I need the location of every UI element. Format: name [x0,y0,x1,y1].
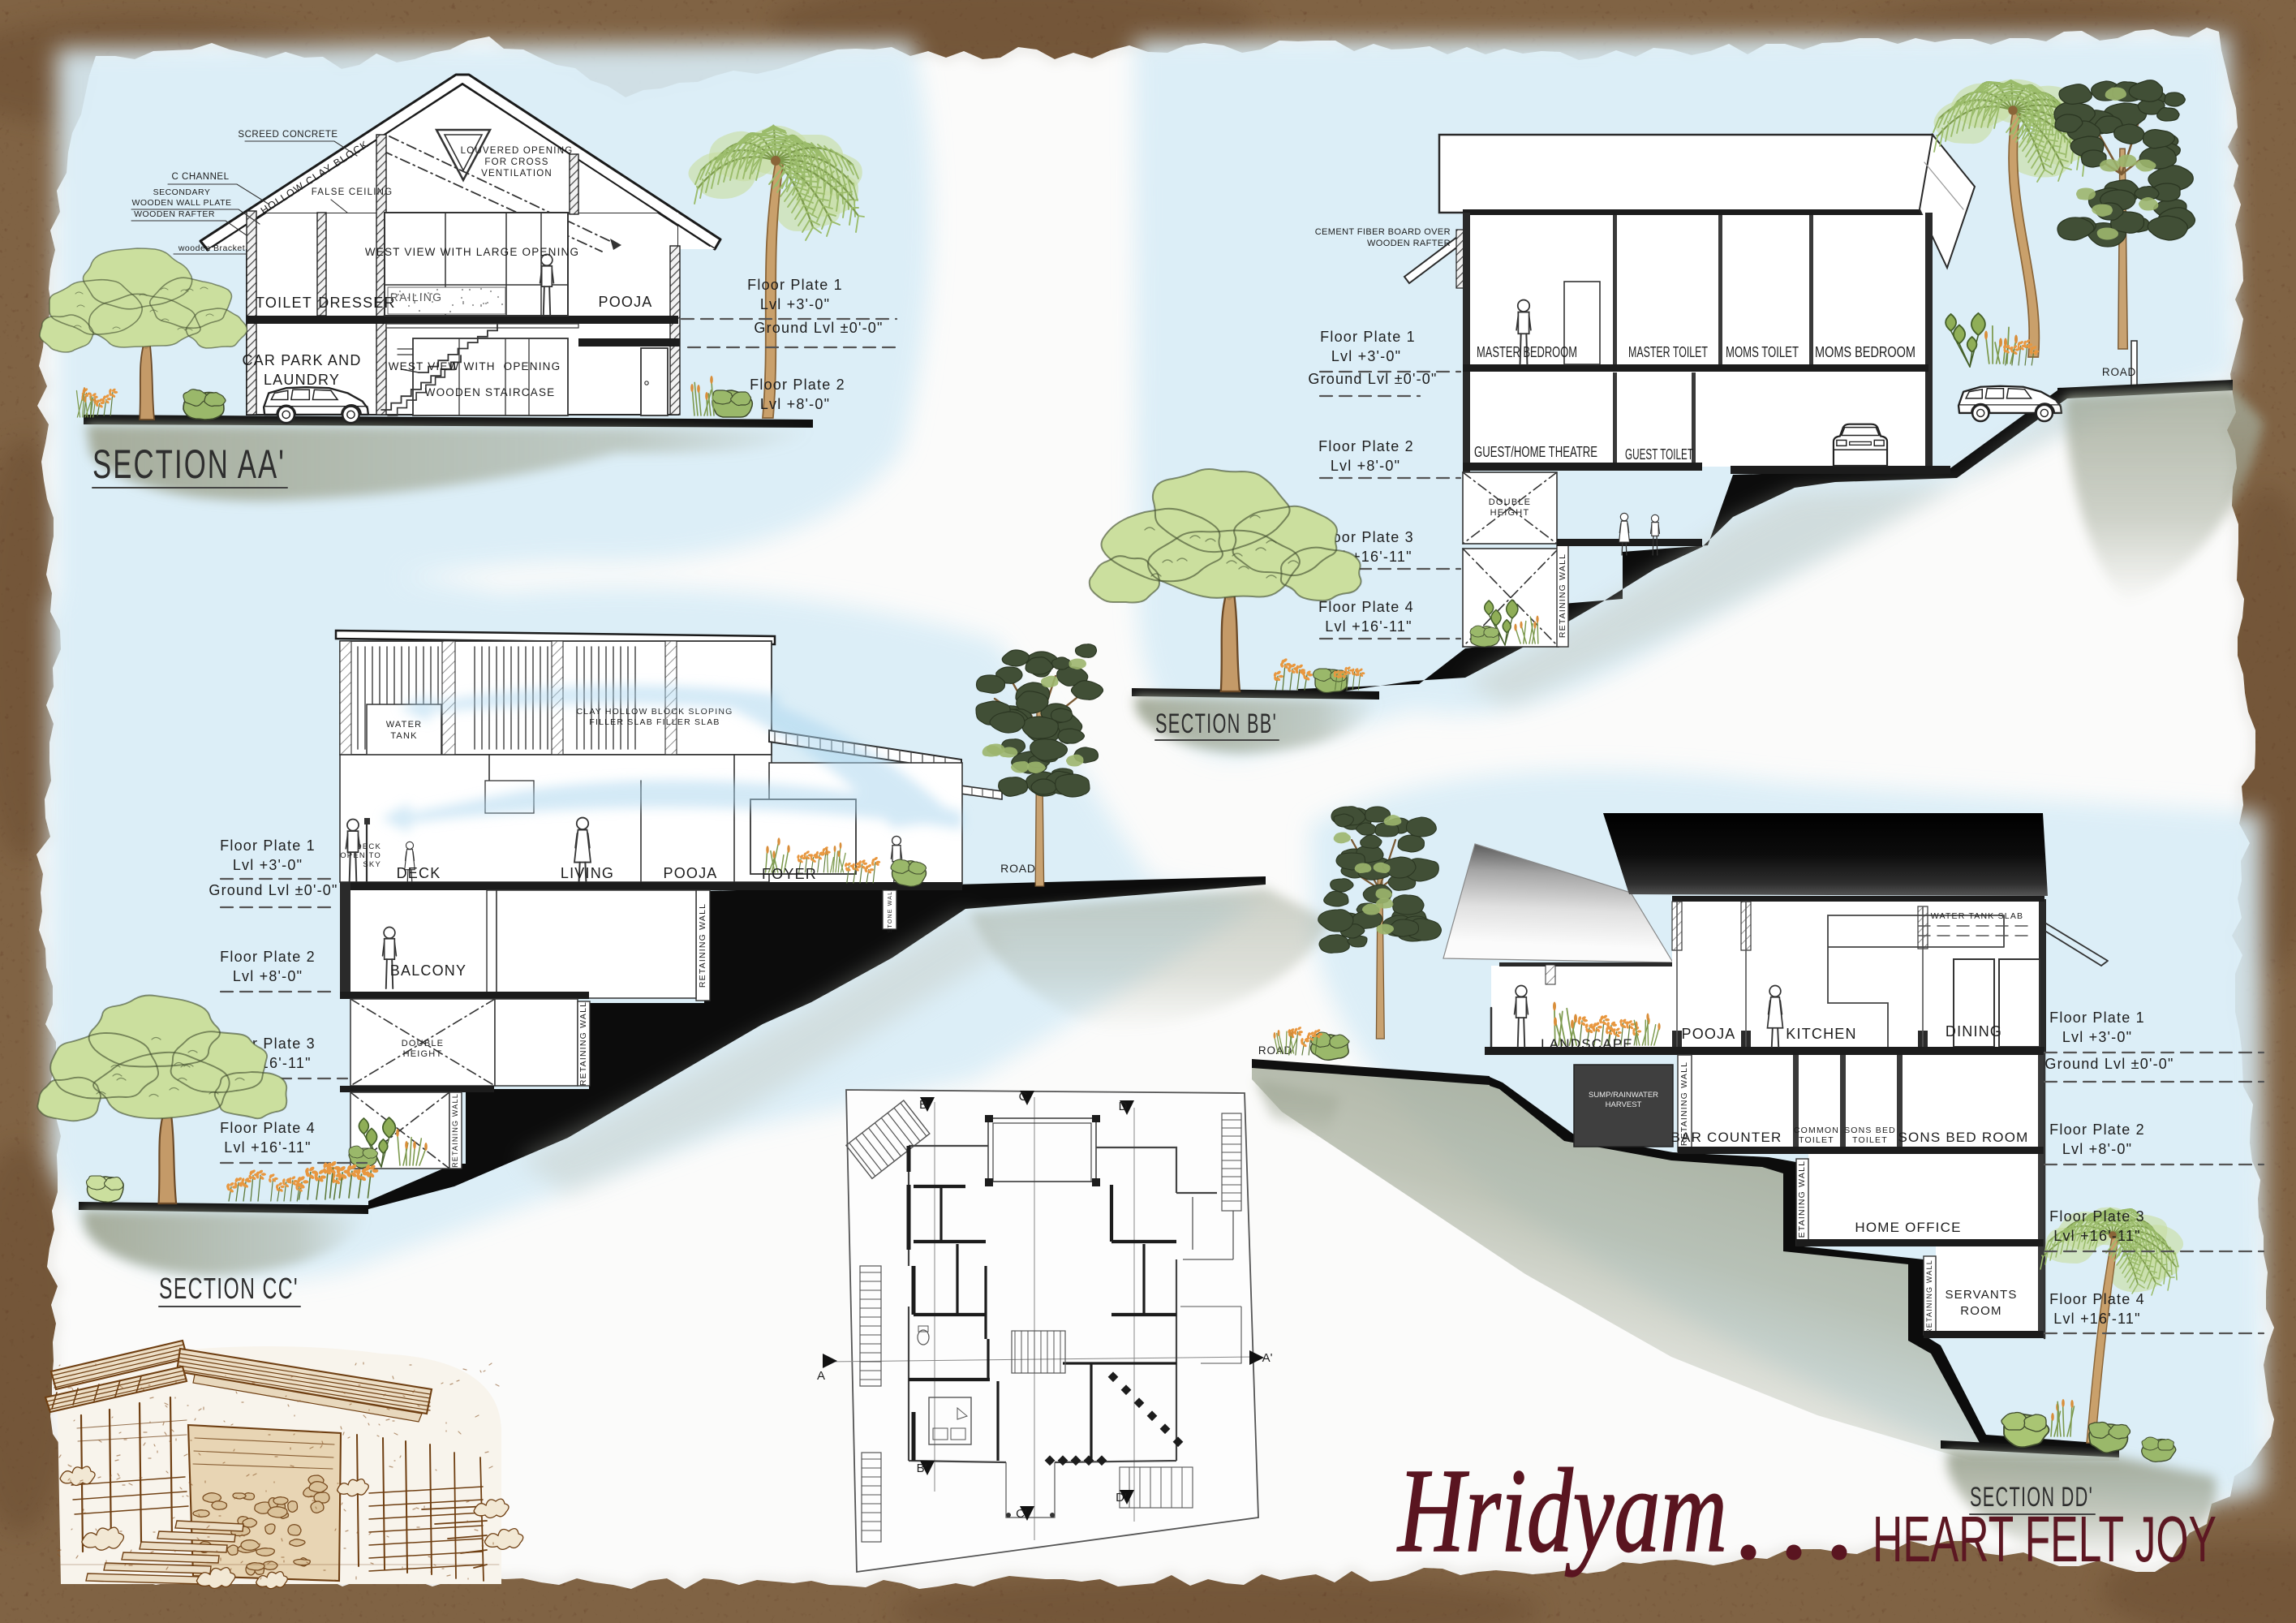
svg-text:Floor Plate 2: Floor Plate 2 [750,377,845,393]
svg-text:Lvl +8'-0": Lvl +8'-0" [2062,1141,2132,1157]
svg-text:RETAINING WALL: RETAINING WALL [451,1093,459,1168]
svg-text:BALCONY: BALCONY [390,962,467,979]
svg-text:A: A [817,1369,825,1383]
svg-text:Floor Plate 2: Floor Plate 2 [2049,1121,2145,1138]
svg-text:A': A' [1262,1351,1273,1365]
svg-text:DOUBLE: DOUBLE [1489,497,1531,507]
svg-text:POOJA: POOJA [1681,1026,1735,1042]
svg-text:SONS BED: SONS BED [1844,1126,1896,1135]
svg-text:Floor Plate 2: Floor Plate 2 [1318,438,1414,454]
svg-text:TOILET: TOILET [1852,1135,1888,1145]
svg-text:BAR COUNTER: BAR COUNTER [1671,1130,1782,1145]
svg-text:RETAINING WALL: RETAINING WALL [698,903,707,988]
svg-text:ROAD: ROAD [1000,862,1036,875]
svg-text:WOODEN RAFTER: WOODEN RAFTER [134,209,215,219]
svg-text:MOMS BEDROOM: MOMS BEDROOM [1815,344,1915,360]
svg-text:C CHANNEL: C CHANNEL [172,172,230,182]
svg-text:Floor Plate 1: Floor Plate 1 [747,277,843,293]
svg-text:VENTILATION: VENTILATION [481,169,553,179]
svg-text:Lvl +16'-11": Lvl +16'-11" [2053,1311,2140,1327]
svg-text:SERVANTS: SERVANTS [1945,1288,2017,1302]
svg-text:Ground Lvl ±0'-0": Ground Lvl ±0'-0" [2044,1056,2173,1072]
svg-text:LANDSCAPE: LANDSCAPE [1541,1036,1633,1052]
svg-text:RETAINING WALL: RETAINING WALL [1925,1259,1933,1334]
svg-text:Lvl +8'-0": Lvl +8'-0" [1331,458,1400,474]
svg-text:Lvl +16'-11": Lvl +16'-11" [224,1139,311,1156]
svg-text:ROAD: ROAD [2102,366,2136,378]
svg-text:CLAY HOLLOW BLOCK SLOPING: CLAY HOLLOW BLOCK SLOPING [577,707,733,717]
svg-text:HEIGHT: HEIGHT [1490,508,1530,518]
svg-text:FOR CROSS: FOR CROSS [484,157,548,167]
svg-text:Lvl +16'-11": Lvl +16'-11" [2053,1228,2140,1244]
svg-text:RETAINING WALL: RETAINING WALL [1558,553,1567,638]
svg-text:HEIGHT: HEIGHT [403,1049,443,1059]
svg-text:HARVEST: HARVEST [1606,1100,1642,1109]
svg-text:SONS BED ROOM: SONS BED ROOM [1898,1130,2028,1145]
svg-text:FOYER: FOYER [762,866,817,882]
svg-text:WATER: WATER [386,720,423,730]
svg-text:TANK: TANK [390,731,417,741]
svg-text:RAILING: RAILING [390,291,442,304]
svg-text:LAUNDRY: LAUNDRY [264,372,340,388]
svg-text:ROAD: ROAD [1258,1044,1292,1057]
svg-text:B: B [919,1098,927,1112]
svg-text:HEART FELT JOY: HEART FELT JOY [1872,1503,2216,1575]
svg-text:RETAINING WALL: RETAINING WALL [578,1001,588,1086]
svg-text:Floor Plate 4: Floor Plate 4 [1318,599,1414,615]
svg-text:LOUVERED OPENING: LOUVERED OPENING [461,146,574,156]
svg-text:Ground Lvl ±0'-0": Ground Lvl ±0'-0" [209,882,338,898]
svg-text:SECTION CC': SECTION CC' [159,1272,299,1305]
svg-text:C': C' [1016,1507,1027,1521]
svg-text:TOILET: TOILET [1799,1135,1834,1145]
svg-text:Floor Plate 3: Floor Plate 3 [2049,1208,2145,1225]
svg-text:CEMENT FIBER BOARD OVER: CEMENT FIBER BOARD OVER [1315,227,1451,237]
svg-text:WOODEN RAFTER: WOODEN RAFTER [1367,239,1451,248]
svg-text:Floor Plate 1: Floor Plate 1 [2049,1010,2145,1026]
svg-text:RETAINING WALL: RETAINING WALL [1797,1160,1807,1245]
svg-text:POOJA: POOJA [663,865,717,881]
svg-text:HOME OFFICE: HOME OFFICE [1855,1220,1961,1235]
svg-text:Lvl +8'-0": Lvl +8'-0" [760,396,830,412]
svg-text:DECK: DECK [397,865,441,881]
svg-text:LIVING: LIVING [561,865,614,881]
svg-text:ROOM: ROOM [1960,1304,2001,1318]
svg-text:SECONDARY: SECONDARY [153,187,211,197]
svg-text:DINING: DINING [1946,1023,2002,1040]
svg-text:WATER TANK SLAB: WATER TANK SLAB [1931,911,2023,921]
svg-text:B': B' [917,1462,927,1475]
svg-text:MASTER TOILET: MASTER TOILET [1628,344,1708,360]
svg-text:KITCHEN: KITCHEN [1786,1026,1856,1042]
svg-text:Lvl +8'-0": Lvl +8'-0" [233,968,303,984]
svg-text:MOMS TOILET: MOMS TOILET [1726,344,1799,360]
svg-text:Floor Plate 1: Floor Plate 1 [1320,329,1416,345]
svg-text:SECTION AA': SECTION AA' [92,441,286,487]
svg-text:WOODEN WALL PLATE: WOODEN WALL PLATE [131,198,231,208]
svg-text:DRESSER: DRESSER [318,295,395,311]
svg-text:GUEST/HOME THEATRE: GUEST/HOME THEATRE [1474,444,1597,460]
svg-text:CAR PARK AND: CAR PARK AND [242,352,361,368]
svg-text:TOILET: TOILET [256,295,312,311]
svg-text:Hridyam: Hridyam [1396,1444,1727,1578]
svg-text:POOJA: POOJA [598,294,652,310]
svg-text:FALSE CEILING: FALSE CEILING [312,187,393,197]
svg-text:Lvl +16'-11": Lvl +16'-11" [1325,618,1412,635]
svg-text:WEST VIEW WITH LARGE OPENING: WEST VIEW WITH LARGE OPENING [365,246,579,258]
svg-text:Lvl +3'-0": Lvl +3'-0" [2062,1029,2132,1045]
svg-text:Lvl +3'-0": Lvl +3'-0" [1331,348,1401,364]
svg-text:FILLER SLAB FILLER SLAB: FILLER SLAB FILLER SLAB [589,717,720,727]
svg-text:STONE WALL: STONE WALL [888,887,893,933]
svg-text:MASTER BEDROOM: MASTER BEDROOM [1477,344,1577,360]
svg-text:WEST VIEW WITH OPENING: WEST VIEW WITH OPENING [389,360,561,372]
svg-text:D': D' [1116,1491,1127,1505]
svg-text:COMMON: COMMON [1794,1126,1839,1135]
svg-text:SUMP/RAINWATER: SUMP/RAINWATER [1589,1091,1658,1100]
svg-text:SKY: SKY [363,860,381,869]
svg-text:DOUBLE: DOUBLE [402,1039,444,1048]
svg-text:Ground Lvl ±0'-0": Ground Lvl ±0'-0" [754,320,883,336]
svg-text:Ground Lvl ±0'-0": Ground Lvl ±0'-0" [1308,371,1437,387]
svg-text:Floor Plate 1: Floor Plate 1 [220,837,316,854]
svg-text:GUEST TOILET: GUEST TOILET [1625,446,1693,463]
svg-text:SECTION BB': SECTION BB' [1155,708,1277,739]
svg-text:Lvl +3'-0": Lvl +3'-0" [233,857,303,873]
svg-text:Floor Plate 4: Floor Plate 4 [220,1120,316,1136]
svg-text:wooden Bracket: wooden Bracket [178,243,245,253]
svg-text:WOODEN STAIRCASE: WOODEN STAIRCASE [425,386,556,398]
svg-text:Lvl +3'-0": Lvl +3'-0" [760,296,830,312]
svg-text:SCREED CONCRETE: SCREED CONCRETE [238,130,338,140]
svg-text:C: C [1019,1090,1028,1104]
svg-text:Floor Plate 4: Floor Plate 4 [2049,1291,2145,1307]
svg-text:D: D [1119,1100,1128,1113]
svg-text:OPEN TO: OPEN TO [340,851,381,860]
svg-text:Floor Plate 2: Floor Plate 2 [220,949,316,965]
